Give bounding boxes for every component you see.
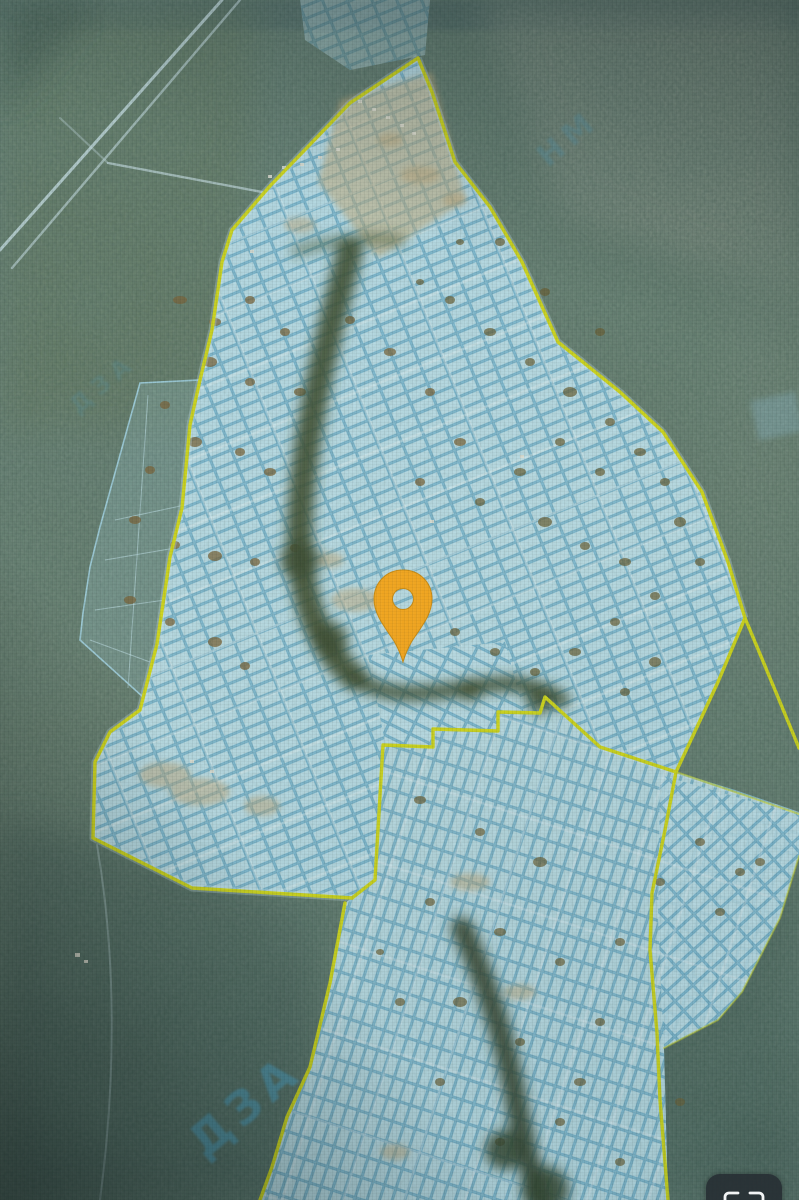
map-viewport[interactable]: ДЗА НМ ДЗА <box>0 0 799 1200</box>
fullscreen-button[interactable] <box>706 1174 782 1200</box>
vignette-overlay <box>0 0 799 1200</box>
fullscreen-icon <box>721 1184 767 1200</box>
